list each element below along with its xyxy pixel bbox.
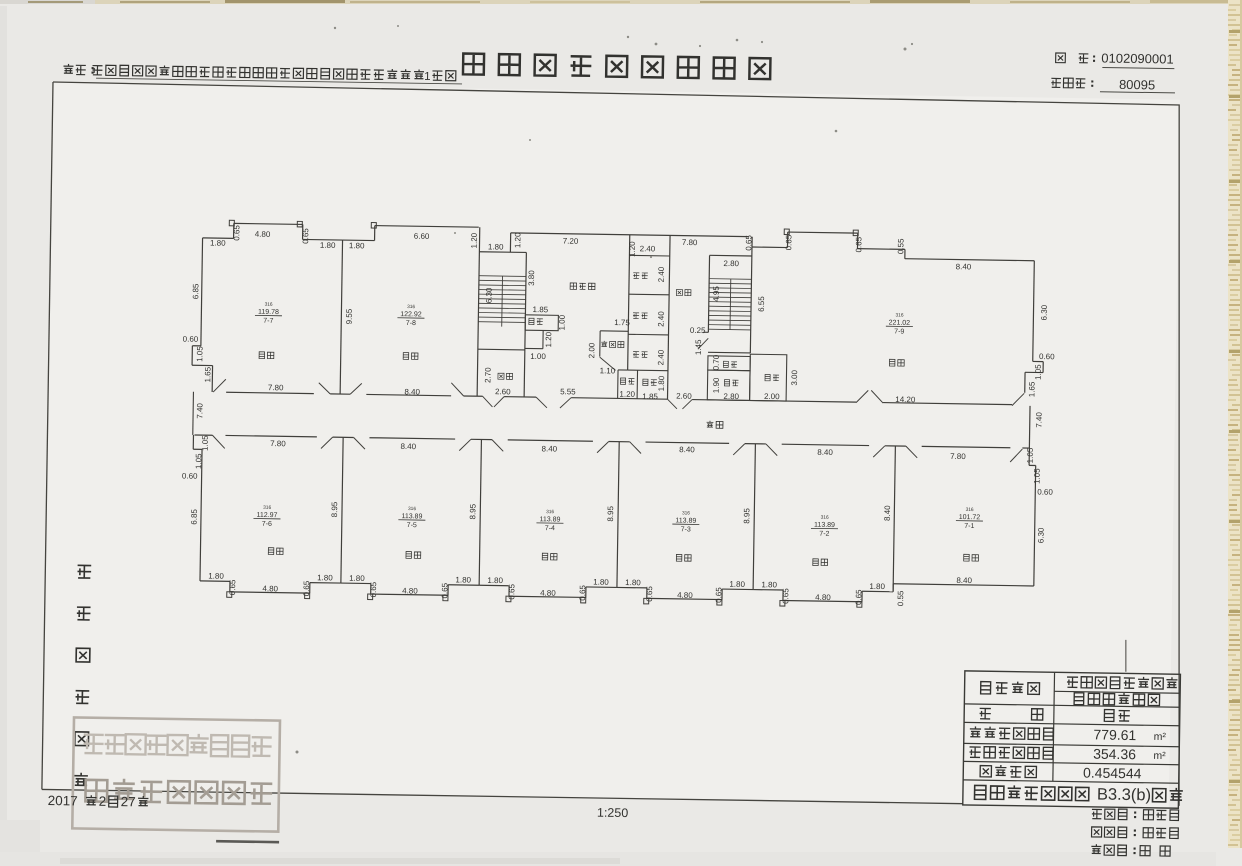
svg-text:8.40: 8.40: [956, 262, 972, 271]
svg-text:1.05: 1.05: [201, 435, 210, 451]
svg-text:113.89: 113.89: [539, 516, 560, 523]
svg-text:316: 316: [821, 515, 829, 521]
svg-text:119.78: 119.78: [258, 309, 279, 316]
svg-text:1.65: 1.65: [1027, 381, 1036, 397]
svg-text:8.40: 8.40: [404, 387, 420, 396]
svg-text:7.40: 7.40: [1034, 412, 1043, 428]
svg-text:7-6: 7-6: [262, 521, 272, 528]
svg-text:0.454544: 0.454544: [1083, 764, 1142, 781]
svg-text:7.80: 7.80: [950, 452, 966, 461]
svg-text:2.40: 2.40: [657, 266, 666, 282]
svg-text:4.80: 4.80: [262, 584, 278, 593]
svg-text:4.95: 4.95: [712, 286, 721, 302]
svg-text:0.60: 0.60: [1037, 488, 1053, 497]
svg-text:1.00: 1.00: [558, 314, 567, 330]
svg-text:1.20: 1.20: [628, 241, 637, 257]
svg-text:1: 1: [424, 71, 431, 83]
svg-text:1.80: 1.80: [593, 578, 609, 587]
svg-text:7.40: 7.40: [195, 402, 204, 418]
svg-text:1.80: 1.80: [455, 575, 471, 584]
svg-text:0.60: 0.60: [183, 335, 199, 344]
svg-text:2.80: 2.80: [723, 259, 739, 268]
svg-text:8.95: 8.95: [468, 503, 477, 519]
svg-text:7.80: 7.80: [268, 383, 284, 392]
svg-text:221.02: 221.02: [889, 320, 911, 327]
svg-text:4.80: 4.80: [255, 230, 271, 239]
svg-text:8.40: 8.40: [679, 445, 695, 454]
svg-text:4.80: 4.80: [815, 593, 831, 602]
svg-text:316: 316: [408, 506, 416, 512]
svg-text:7-1: 7-1: [964, 523, 974, 530]
svg-text:8.95: 8.95: [606, 505, 615, 521]
svg-text:779.61: 779.61: [1093, 726, 1136, 743]
svg-text:7-9: 7-9: [894, 328, 904, 335]
svg-text:8.40: 8.40: [883, 505, 892, 521]
svg-text:2.00: 2.00: [764, 392, 780, 401]
svg-text:0102090001: 0102090001: [1101, 50, 1174, 66]
svg-text:0.65: 0.65: [784, 234, 793, 250]
svg-text:3.00: 3.00: [790, 369, 799, 385]
svg-text:7.80: 7.80: [270, 439, 286, 448]
svg-text:0.70: 0.70: [712, 354, 721, 370]
svg-text:5.55: 5.55: [560, 387, 576, 396]
svg-text:0.65: 0.65: [578, 584, 587, 600]
svg-text:0.55: 0.55: [896, 590, 905, 606]
svg-text:1.80: 1.80: [625, 578, 641, 587]
svg-text:4.80: 4.80: [402, 586, 418, 595]
svg-text:1.90: 1.90: [712, 377, 721, 393]
svg-text:7-3: 7-3: [681, 526, 691, 533]
svg-text:0.65: 0.65: [744, 235, 753, 251]
svg-text:2.40: 2.40: [656, 349, 665, 365]
svg-text:0.65: 0.65: [645, 586, 654, 602]
svg-text:316: 316: [546, 509, 554, 515]
svg-text:8.40: 8.40: [817, 448, 833, 457]
svg-text:1.80: 1.80: [317, 573, 333, 582]
svg-text:1.45: 1.45: [694, 339, 703, 355]
svg-text:2.70: 2.70: [483, 367, 492, 383]
svg-text:354.36: 354.36: [1093, 746, 1136, 763]
svg-text:B3.3(b): B3.3(b): [1097, 785, 1151, 804]
svg-text:316: 316: [966, 507, 974, 513]
svg-text:1.80: 1.80: [487, 576, 503, 585]
svg-text:316: 316: [895, 312, 903, 318]
svg-text:1.75: 1.75: [614, 318, 630, 327]
svg-text:6.85: 6.85: [190, 508, 199, 524]
svg-text:1.05: 1.05: [195, 346, 204, 362]
svg-text:8.40: 8.40: [542, 444, 558, 453]
svg-text:0.25: 0.25: [690, 326, 706, 335]
svg-text:6.55: 6.55: [757, 296, 766, 312]
svg-text:8.40: 8.40: [400, 442, 416, 451]
svg-text:7-4: 7-4: [545, 525, 555, 532]
svg-text:1.20: 1.20: [470, 232, 479, 248]
svg-text:1.80: 1.80: [320, 241, 336, 250]
svg-text:113.89: 113.89: [675, 517, 696, 524]
svg-text:2.60: 2.60: [676, 392, 692, 401]
svg-text:1.80: 1.80: [761, 580, 777, 589]
svg-text:1.80: 1.80: [208, 572, 224, 581]
svg-text:0.65: 0.65: [301, 228, 310, 244]
svg-text:1.80: 1.80: [210, 238, 226, 247]
svg-text:8.95: 8.95: [742, 508, 751, 524]
svg-text:316: 316: [265, 302, 273, 308]
svg-text:7-5: 7-5: [407, 522, 417, 529]
svg-text:7-2: 7-2: [819, 531, 829, 538]
svg-text:0.55: 0.55: [896, 238, 905, 254]
svg-text:m²: m²: [1153, 750, 1166, 762]
svg-text:1.05: 1.05: [194, 453, 203, 469]
svg-text:1.05: 1.05: [1034, 364, 1043, 380]
svg-text:8.40: 8.40: [956, 576, 972, 585]
svg-text:112.97: 112.97: [257, 512, 278, 519]
svg-text:0.65: 0.65: [440, 582, 449, 598]
svg-text:0.65: 0.65: [714, 587, 723, 603]
svg-text:0.60: 0.60: [182, 471, 198, 480]
svg-text:101.72: 101.72: [959, 514, 981, 521]
svg-text:7.80: 7.80: [682, 238, 698, 247]
svg-text:1.20: 1.20: [513, 232, 522, 248]
svg-text:1.80: 1.80: [657, 375, 666, 391]
svg-text:0.60: 0.60: [1039, 352, 1055, 361]
svg-text:1.85: 1.85: [533, 305, 549, 314]
svg-text:1:250: 1:250: [597, 806, 629, 820]
svg-text:2.40: 2.40: [640, 244, 656, 253]
svg-text:1.05: 1.05: [1033, 468, 1042, 484]
svg-text:6.30: 6.30: [1040, 304, 1049, 320]
svg-text:1.20: 1.20: [544, 331, 553, 347]
svg-text:1.80: 1.80: [349, 241, 365, 250]
svg-text:1.10: 1.10: [600, 366, 616, 375]
svg-text:1.65: 1.65: [203, 366, 212, 382]
svg-text:316: 316: [682, 510, 690, 516]
svg-text:14.20: 14.20: [895, 395, 916, 404]
svg-text:1.20: 1.20: [619, 390, 635, 399]
svg-text:2.80: 2.80: [723, 392, 739, 401]
svg-text:316: 316: [407, 304, 415, 310]
svg-text:113.89: 113.89: [401, 513, 422, 520]
svg-text:0.65: 0.65: [232, 225, 241, 241]
svg-text:1.80: 1.80: [869, 582, 885, 591]
svg-text:6.30: 6.30: [1036, 527, 1045, 543]
svg-text:9.55: 9.55: [345, 308, 354, 324]
svg-text:2.60: 2.60: [495, 387, 511, 396]
svg-text:6.85: 6.85: [191, 283, 200, 299]
svg-text:122.92: 122.92: [400, 311, 422, 318]
svg-text:0.65: 0.65: [854, 236, 863, 252]
svg-text:113.89: 113.89: [814, 522, 835, 529]
svg-text:1.00: 1.00: [530, 352, 546, 361]
svg-text:1.80: 1.80: [349, 574, 365, 583]
svg-text:2017: 2017: [48, 793, 78, 808]
svg-text:6.60: 6.60: [414, 232, 430, 241]
svg-text:3.80: 3.80: [527, 270, 536, 286]
svg-text:80095: 80095: [1119, 77, 1155, 93]
svg-text:316: 316: [263, 505, 271, 511]
svg-text:0.65: 0.65: [228, 579, 237, 595]
svg-text:4.80: 4.80: [540, 589, 556, 598]
svg-text:0.65: 0.65: [302, 580, 311, 596]
svg-text:0.65: 0.65: [507, 583, 516, 599]
svg-text:1.05: 1.05: [1026, 447, 1035, 463]
svg-text:7-8: 7-8: [406, 320, 416, 327]
svg-text:0.65: 0.65: [854, 589, 863, 605]
svg-text:27: 27: [121, 794, 136, 809]
svg-text:0.65: 0.65: [369, 581, 378, 597]
svg-text:2.00: 2.00: [587, 342, 596, 358]
svg-text:7.20: 7.20: [563, 237, 579, 246]
svg-text:7-7: 7-7: [263, 318, 273, 325]
svg-text:0.65: 0.65: [781, 588, 790, 604]
svg-text:1.80: 1.80: [729, 580, 745, 589]
svg-text:8.95: 8.95: [330, 501, 339, 517]
svg-text:1.85: 1.85: [642, 392, 658, 401]
svg-text:2.40: 2.40: [657, 311, 666, 327]
svg-text:2: 2: [99, 794, 107, 809]
svg-text:1.80: 1.80: [488, 242, 504, 251]
svg-text:6.30: 6.30: [484, 287, 493, 303]
svg-text:4.80: 4.80: [677, 591, 693, 600]
svg-text:m²: m²: [1154, 731, 1167, 743]
